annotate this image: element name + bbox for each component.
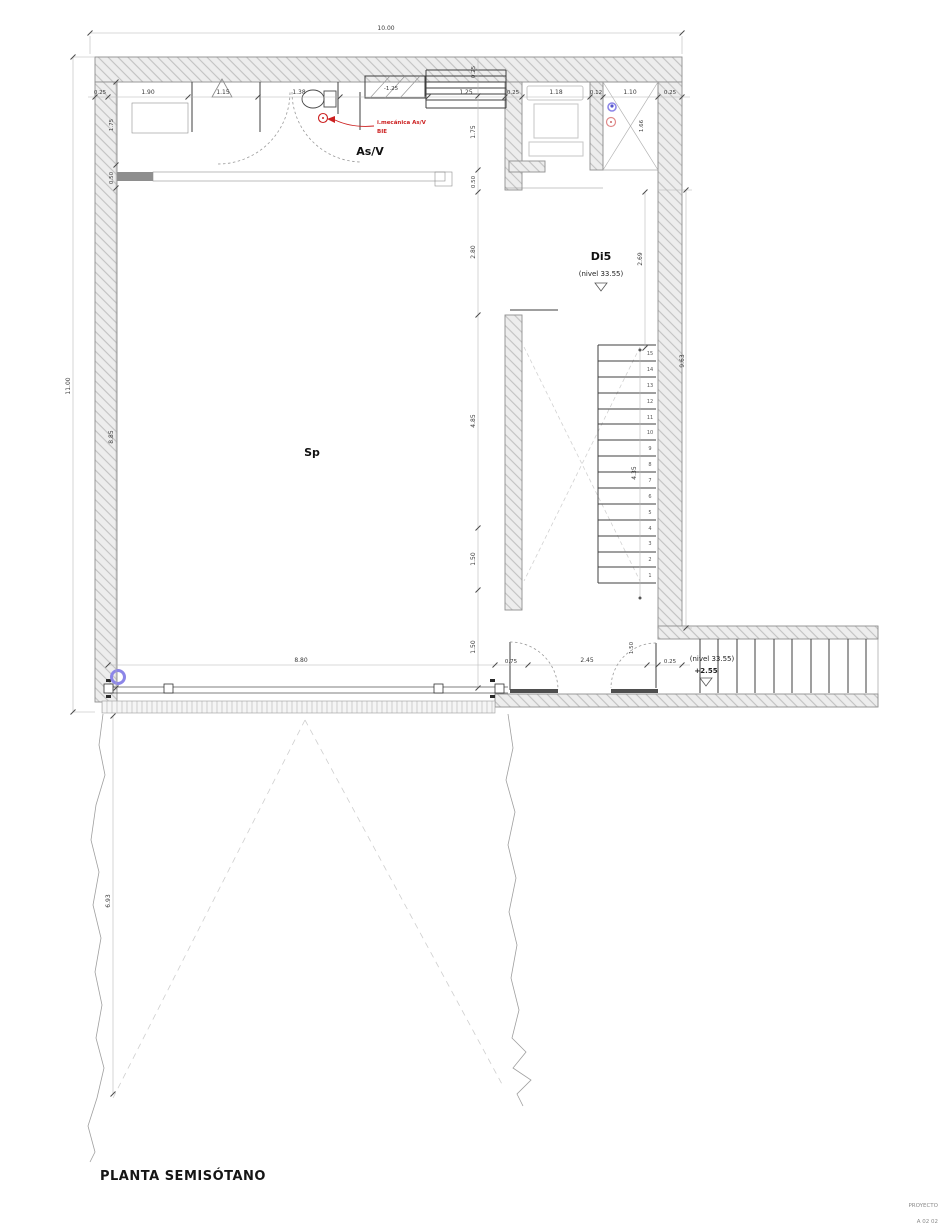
room-label-di5: Di5 [591,250,612,263]
level-marker-icon [700,678,712,686]
dimension-top-total: 10.00 [88,25,685,54]
red-note-line2: BIE [377,129,387,135]
dim-center-4: 4.85 [470,414,477,428]
dim-center-0: 0.25 [471,65,477,78]
wing-bottom-wall [495,694,878,707]
threshold [510,689,558,693]
dim-center-6: 1.50 [470,640,477,654]
dim-center-3: 2.80 [470,245,477,259]
room-label-asv: As/V [356,145,384,158]
end-fitting [490,679,495,682]
step-number: 14 [647,367,653,373]
dim-stair-run: 4.35 [631,466,638,480]
dim-top-row-3: 1.38 [292,89,306,96]
dim-door-jamb: 1.50 [629,641,635,654]
dim-top-row-1: 1.90 [141,89,155,96]
toilet-tank [324,91,336,107]
door-arc [218,92,290,164]
drawing-title: PLANTA SEMISÓTANO [100,1168,266,1184]
footer-line1: PROYECTO [908,1203,938,1209]
entry-level-value: +2.55 [694,667,717,675]
level-marker-icon [595,283,607,291]
dim-top-row-0: 0.25 [94,90,107,96]
dim-bottom-1: 0.75 [505,659,518,665]
pink-symbol-dot [610,121,612,123]
dim-top-row-6: 1.18 [549,89,563,96]
step-number: 11 [647,415,653,421]
dim-left-c: 8.85 [108,430,115,444]
dim-shaft-depth: 1.66 [639,119,645,132]
interior-walls [192,82,603,610]
top-room-fixtures [117,70,506,186]
step-number: 6 [648,494,651,500]
end-fitting [106,695,111,698]
step-number: 15 [647,351,653,357]
projection-line [305,720,503,1086]
dim-top-row-7: 0.12 [590,90,602,96]
glass-wall [102,671,508,714]
threshold [611,689,658,693]
dim-right-total: 9.63 [679,354,686,368]
break-line-left [88,714,105,1162]
end-fitting [106,679,111,682]
floor-plan-page: 1 2 3 4 5 6 7 8 9 10 11 12 13 14 15 [0,0,940,1227]
mullion [434,684,443,693]
storage-level-text: -1.25 [384,86,399,92]
pier-a [505,82,522,190]
title-block: PLANTA SEMISÓTANO PROYECTO A 02 02 [100,1168,939,1225]
dim-top-row-9: 0.25 [664,90,677,96]
dim-left-a: 1.75 [109,118,115,131]
entry-level-text: (nivel 33.55) [690,655,735,663]
mullion [164,684,173,693]
step-number: 4 [648,526,651,532]
step-number: 9 [648,446,651,452]
dim-center-2: 0.50 [471,175,477,188]
mullion [104,684,113,693]
step-number: 1 [648,573,651,579]
dimension-left-total: 11.00 [65,55,95,715]
floor-plan-drawing: 1 2 3 4 5 6 7 8 9 10 11 12 13 14 15 [0,0,940,1227]
mullion [495,684,504,693]
dim-bottom-2: 2.45 [580,657,594,664]
red-note-line1: i.mecánica As/V [377,119,427,126]
leader-arrowhead-icon [327,116,335,123]
dim-top-row-5: 0.25 [507,90,520,96]
step-number: 7 [648,478,651,484]
projection-line [113,720,305,1098]
dimension-bottom-row: 8.80 0.75 2.45 0.25 1.50 [106,641,691,667]
deck-strip [102,701,495,713]
dim-ground-depth: 6.93 [105,894,112,908]
dim-top-row-4: 1.25 [459,89,473,96]
footer-line2: A 02 02 [917,1219,938,1225]
terrain: 6.93 [88,714,531,1163]
counter [132,103,188,133]
dim-top-total: 10.00 [377,25,394,32]
red-annotation: i.mecánica As/V BIE [319,114,427,136]
dim-right-upper: 2.69 [637,252,644,266]
exterior-walls [95,57,878,707]
dim-top-row-2: 1.15 [216,89,230,96]
leader-line [335,120,374,126]
dim-bottom-0: 8.80 [294,657,308,664]
step-number: 5 [648,510,651,516]
bottom-doors [510,642,658,693]
dim-left-b: 0.50 [109,171,115,184]
dim-bottom-3: 0.25 [664,659,677,665]
break-line-right [506,714,531,1106]
step-number: 3 [648,541,651,547]
stair-hall-wall [505,315,522,610]
machinery [527,86,583,156]
end-fitting [490,695,495,698]
dim-top-row-8: 1.10 [623,89,637,96]
step-number: 12 [647,399,653,405]
stair-step-numbers: 1 2 3 4 5 6 7 8 9 10 11 12 13 14 15 [647,351,653,579]
dim-center-5: 1.50 [470,552,477,566]
dimension-center-chain: 0.25 1.75 0.50 2.80 4.85 1.50 1.50 [470,57,481,691]
blue-symbol-dot [610,104,613,107]
shelf [117,172,452,186]
dim-left-total: 11.00 [65,377,72,394]
step-number: 10 [647,430,653,436]
step-number: 13 [647,383,653,389]
di5-level-text: (nivel 33.55) [579,270,624,278]
step-number: 8 [648,462,651,468]
room-label-sp: Sp [304,446,320,459]
dim-center-1: 1.75 [470,125,477,139]
wing-stair [700,639,866,693]
step-number: 2 [648,557,651,563]
lobby-stub [509,161,545,172]
